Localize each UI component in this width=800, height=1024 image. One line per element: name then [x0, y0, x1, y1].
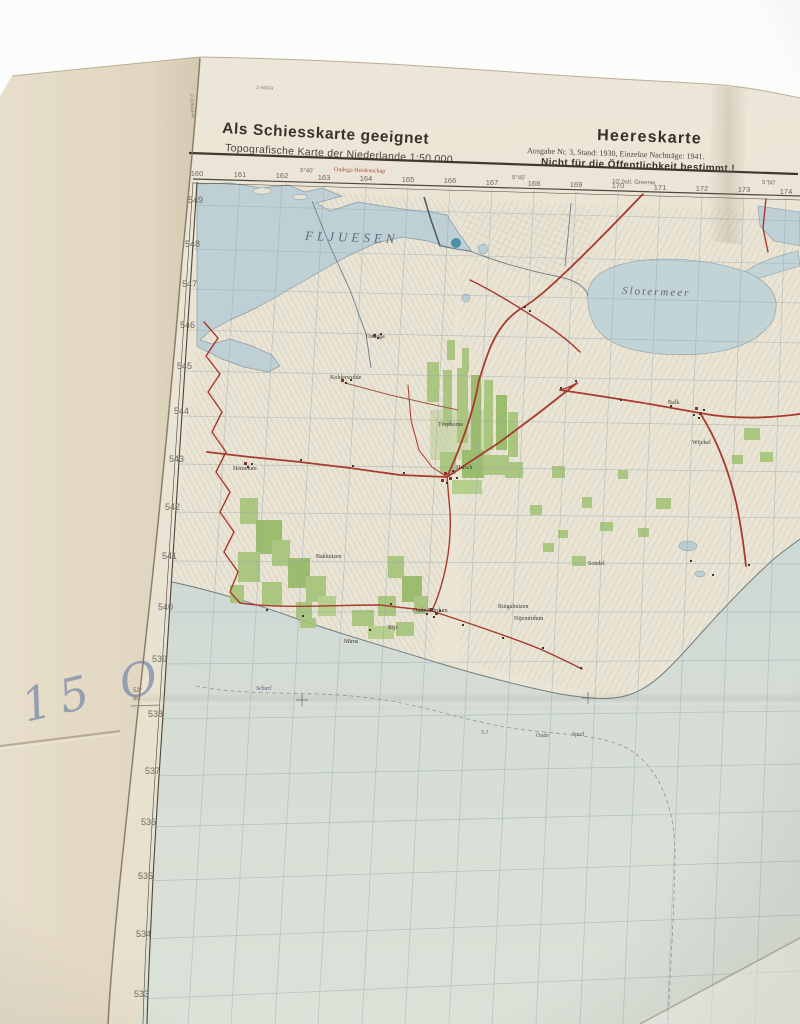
photo-lighting — [0, 0, 800, 1024]
heereskarte-sheet: Als Schiesskarte geeignet Topografische … — [0, 0, 800, 1024]
map-photo: Als Schiesskarte geeignet Topografische … — [0, 0, 800, 1024]
